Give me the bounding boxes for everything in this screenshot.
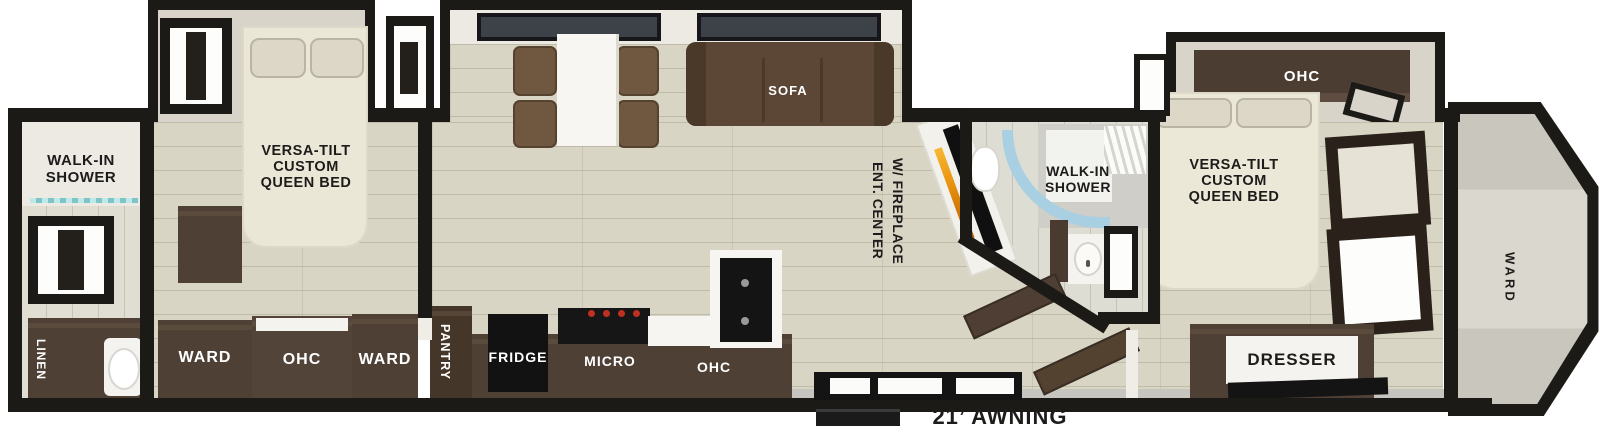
rear-ward-left-label: WARD: [158, 348, 252, 368]
ent-center-label: ENT. CENTER W/ FIREPLACE: [868, 136, 912, 286]
sofa-arm-left: [686, 42, 706, 126]
wall-rear-bedroom-divider: [418, 122, 432, 318]
pantry-label: PANTRY: [438, 310, 464, 394]
ent-center-label-line2: W/ FIREPLACE: [888, 136, 908, 286]
awning-label: 21’ AWNING: [932, 405, 1067, 430]
sofa-label: SOFA: [752, 82, 824, 98]
mid-bath-top-window-glass: [1140, 60, 1164, 110]
entry-tread-3: [956, 378, 1014, 394]
hall-door-jamb: [1126, 330, 1138, 398]
fridge-label: FRIDGE: [488, 348, 548, 366]
rear-shower-label: WALK-IN SHOWER: [28, 146, 134, 194]
rear-bed-pillow-right: [310, 38, 364, 78]
dresser-plate: DRESSER: [1226, 336, 1358, 384]
sofa-arm-right: [874, 42, 894, 126]
wall-top-rear: [8, 108, 148, 122]
mid-sink-drain: [1086, 260, 1090, 267]
mid-bath-window-glass: [1110, 234, 1132, 290]
rear-bed-label-line3: QUEEN BED: [261, 175, 352, 191]
entry-tread-1: [830, 378, 870, 394]
rear-ohc-counter: [256, 318, 348, 331]
dinette-chair-1: [513, 46, 557, 96]
awning-label-wrap: 21’ AWNING: [900, 404, 1100, 430]
dresser-label: DRESSER: [1247, 350, 1336, 369]
mid-toilet-icon: [970, 146, 1000, 192]
floorplan-canvas: OHC WALK-IN SHOWER LINEN VERSA-TILT CUST…: [0, 0, 1600, 433]
rear-bedroom-cabinet: [178, 206, 242, 283]
front-bedroom-window-lower-glass: [1339, 235, 1421, 324]
rear-shower-label-line2: SHOWER: [46, 170, 117, 187]
wall-rear-bath-divider: [140, 108, 154, 412]
rear-bedroom-door-jamb: [418, 318, 432, 340]
mid-vanity-cabinet: [1050, 220, 1068, 282]
drawer-knob-1: [741, 279, 749, 287]
mid-shower-label-line2: SHOWER: [1045, 180, 1111, 196]
rear-bed-label-line2: CUSTOM: [273, 159, 339, 175]
dinette-chair-3: [617, 46, 659, 96]
dinette-table: [557, 34, 619, 146]
mid-shower-label: WALK-IN SHOWER: [1032, 158, 1124, 202]
rear-bath-window-mullion: [58, 230, 84, 290]
wall-mid-bath-left: [960, 122, 972, 240]
rear-bedroom-window-left-mullion: [186, 32, 206, 100]
front-bedroom-window-upper-glass: [1338, 143, 1419, 218]
wall-bottom: [8, 398, 1492, 412]
kitchen-counter-white: [648, 316, 718, 346]
rear-bed-label: VERSA-TILT CUSTOM QUEEN BED: [240, 134, 372, 200]
rear-shower-label-line1: WALK-IN: [47, 153, 115, 170]
wall-rear-end: [8, 108, 22, 412]
dinette-chair-2: [513, 100, 557, 148]
mid-shower-label-line1: WALK-IN: [1046, 164, 1109, 180]
wall-mid-bath-right: [1148, 108, 1160, 324]
rear-bed-pillow-left: [250, 38, 306, 78]
rear-toilet-icon: [108, 348, 140, 390]
cooktop-knob-1: [588, 310, 595, 317]
living-window-right-icon: [697, 13, 881, 41]
front-bed-label: VERSA-TILT CUSTOM QUEEN BED: [1160, 146, 1308, 216]
cooktop-knob-4: [633, 310, 640, 317]
linen-label: LINEN: [34, 326, 58, 392]
rear-ward-right-label: WARD: [350, 350, 420, 370]
rear-bedroom-window-right-mullion: [400, 42, 418, 94]
kitchen-ohc-label: OHC: [664, 358, 764, 376]
drawer-knob-2: [741, 317, 749, 325]
front-bed-pillow-right: [1236, 98, 1312, 128]
mid-sink-icon: [1074, 242, 1102, 276]
front-cap-ward-label: WARD: [1502, 222, 1530, 334]
cooktop-knob-2: [603, 310, 610, 317]
rear-shower-glass: [30, 198, 138, 203]
entry-tread-2: [878, 378, 942, 394]
rear-bed-label-line1: VERSA-TILT: [261, 143, 350, 159]
front-bed-label-line1: VERSA-TILT: [1189, 157, 1278, 173]
cooktop-knob-3: [618, 310, 625, 317]
front-bed-label-line3: QUEEN BED: [1189, 189, 1280, 205]
dinette-chair-4: [617, 100, 659, 148]
front-bed-label-line2: CUSTOM: [1201, 173, 1267, 189]
wall-top-mid2: [905, 108, 1166, 122]
dishwasher-icon: [720, 258, 772, 342]
micro-label: MICRO: [560, 352, 660, 370]
exterior-step-icon: [816, 409, 900, 426]
wall-front-bedroom-divider: [1444, 108, 1458, 412]
front-bedroom-ohc-label: OHC: [1284, 68, 1320, 85]
ent-center-label-line1: ENT. CENTER: [868, 136, 888, 286]
rear-ohc-label: OHC: [252, 350, 352, 370]
